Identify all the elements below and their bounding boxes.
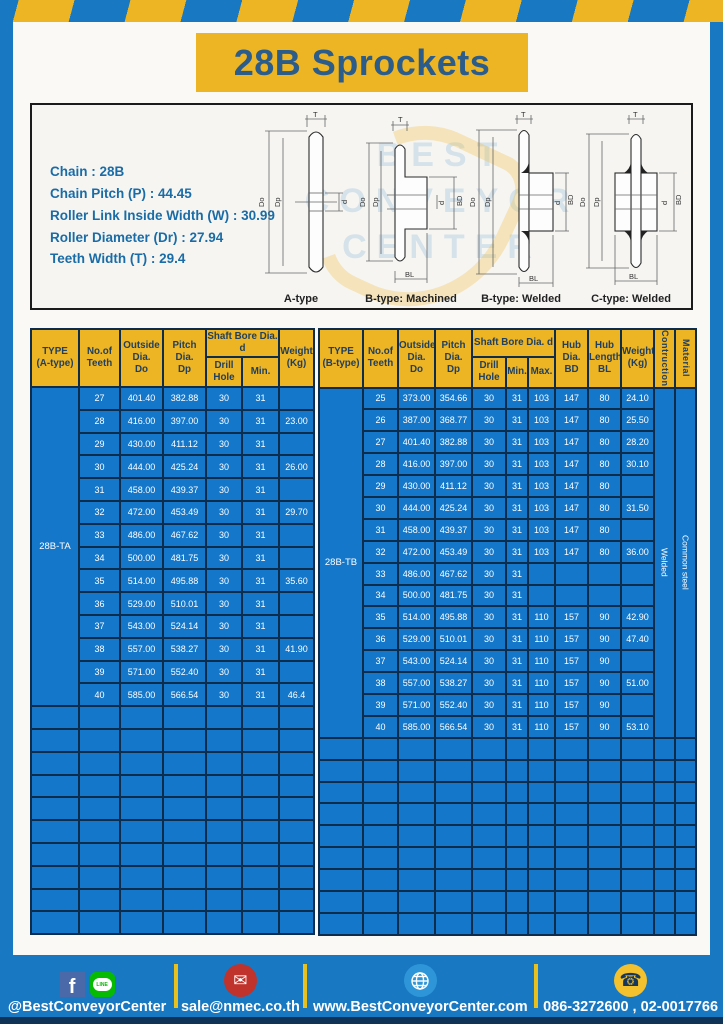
cell xyxy=(588,869,621,891)
cell xyxy=(206,797,242,820)
drawing-b-type-machined: T Do Dp d BD BL B-type: Machined xyxy=(357,111,465,305)
cell xyxy=(363,869,398,891)
cell: 529.00 xyxy=(398,628,435,650)
drawing-caption: B-type: Welded xyxy=(481,293,561,305)
cell xyxy=(31,706,79,729)
cell: 147 xyxy=(555,541,588,563)
cell: 31 xyxy=(242,547,279,570)
cell xyxy=(398,803,435,825)
cell xyxy=(621,760,654,782)
cell: 382.88 xyxy=(163,387,206,410)
cell xyxy=(279,775,314,798)
cell xyxy=(120,889,163,912)
cell xyxy=(654,782,675,804)
cell xyxy=(242,820,279,843)
cell xyxy=(363,803,398,825)
cell: 31 xyxy=(242,410,279,433)
svg-text:BL: BL xyxy=(529,274,538,283)
cell xyxy=(675,847,696,869)
empty-table-row xyxy=(31,752,314,775)
cell: 31 xyxy=(242,501,279,524)
cell xyxy=(242,775,279,798)
cell xyxy=(279,797,314,820)
chain-specs: Chain : 28B Chain Pitch (P) : 44.45 Roll… xyxy=(50,161,275,270)
drawing-a-type: T Do Dp d A-type xyxy=(247,111,355,305)
cell: Welded xyxy=(654,388,675,738)
cell xyxy=(120,729,163,752)
cell: 30 xyxy=(206,569,242,592)
cell xyxy=(279,729,314,752)
table-row: 38557.00538.2730311101579051.00 xyxy=(319,672,696,694)
cell: 416.00 xyxy=(120,410,163,433)
cell xyxy=(472,825,506,847)
table-row: 40585.00566.5430311101579053.10 xyxy=(319,716,696,738)
cell xyxy=(319,825,363,847)
cell xyxy=(675,782,696,804)
cell: 31 xyxy=(506,409,528,431)
table-row: 27401.40382.8830311031478028.20 xyxy=(319,431,696,453)
cell: 30 xyxy=(472,453,506,475)
cell: 458.00 xyxy=(120,478,163,501)
cell: 37 xyxy=(79,615,120,638)
cell xyxy=(588,847,621,869)
cell xyxy=(206,820,242,843)
phone-icon: ☎ xyxy=(614,964,647,997)
cell xyxy=(206,706,242,729)
cell xyxy=(319,847,363,869)
drawing-caption: C-type: Welded xyxy=(591,293,671,305)
col-header-drill-hole: Drill Hole xyxy=(472,357,506,387)
svg-text:T: T xyxy=(633,111,638,119)
cell: 514.00 xyxy=(398,606,435,628)
drawings-row: T Do Dp d A-type T xyxy=(247,111,685,305)
cell xyxy=(555,847,588,869)
cell xyxy=(31,911,79,934)
cell xyxy=(528,782,555,804)
cell: 31 xyxy=(506,585,528,607)
cell xyxy=(319,869,363,891)
table-row: 35514.00495.8830311101579042.90 xyxy=(319,606,696,628)
cell xyxy=(472,891,506,913)
cell: 510.01 xyxy=(163,592,206,615)
svg-text:BD: BD xyxy=(455,195,464,206)
cell: 46.4 xyxy=(279,683,314,706)
cell: 500.00 xyxy=(120,547,163,570)
svg-text:BL: BL xyxy=(405,270,414,279)
cell: 30 xyxy=(206,524,242,547)
b-type-welded-diagram: T Do Dp d BD BL xyxy=(467,111,575,293)
svg-text:d: d xyxy=(437,201,446,205)
table-row: 39571.00552.40303111015790 xyxy=(319,694,696,716)
cell: 36 xyxy=(363,628,398,650)
cell xyxy=(31,820,79,843)
cell: 354.66 xyxy=(435,388,472,410)
cell xyxy=(163,820,206,843)
cell xyxy=(163,911,206,934)
footer-phone[interactable]: ☎ 086-3272600 , 02-0017766 xyxy=(538,957,723,1015)
cell: 571.00 xyxy=(398,694,435,716)
cell: 29 xyxy=(363,475,398,497)
cell: 33 xyxy=(363,563,398,585)
cell xyxy=(31,797,79,820)
empty-table-row xyxy=(31,889,314,912)
cell: 30 xyxy=(206,592,242,615)
cell: 34 xyxy=(79,547,120,570)
cell: 31 xyxy=(506,628,528,650)
cell xyxy=(242,911,279,934)
table-b-type: TYPE (B-type) No.of Teeth Outside Dia. D… xyxy=(318,328,697,936)
cell xyxy=(588,563,621,585)
cell: 47.40 xyxy=(621,628,654,650)
cell: 495.88 xyxy=(435,606,472,628)
cell xyxy=(555,913,588,935)
table-row: 36529.00510.0130311101579047.40 xyxy=(319,628,696,650)
cell: 25.50 xyxy=(621,409,654,431)
cell: 157 xyxy=(555,606,588,628)
cell xyxy=(319,760,363,782)
cell xyxy=(79,866,120,889)
cell: 110 xyxy=(528,694,555,716)
cell xyxy=(506,738,528,760)
cell: 90 xyxy=(588,672,621,694)
cell xyxy=(528,825,555,847)
table-row: 28416.00397.0030311031478030.10 xyxy=(319,453,696,475)
cell: 103 xyxy=(528,388,555,410)
cell xyxy=(363,825,398,847)
cell: 110 xyxy=(528,716,555,738)
cell: 31 xyxy=(506,672,528,694)
empty-table-row xyxy=(31,775,314,798)
cell: 36 xyxy=(79,592,120,615)
table-row: 34500.00481.753031 xyxy=(319,585,696,607)
table-a-body: 28B-TA27401.40382.88303128416.00397.0030… xyxy=(31,387,314,934)
cell: 566.54 xyxy=(435,716,472,738)
svg-text:d: d xyxy=(340,200,349,204)
cell xyxy=(79,911,120,934)
cell xyxy=(398,782,435,804)
cell: 30 xyxy=(472,563,506,585)
cell: 157 xyxy=(555,650,588,672)
cell xyxy=(319,913,363,935)
cell: 453.49 xyxy=(163,501,206,524)
cell: 31 xyxy=(506,475,528,497)
cell: 157 xyxy=(555,628,588,650)
cell xyxy=(120,752,163,775)
cell xyxy=(621,847,654,869)
cell xyxy=(675,738,696,760)
cell xyxy=(120,775,163,798)
cell xyxy=(31,843,79,866)
c-type-welded-diagram: T Do Dp d BD BL xyxy=(579,111,683,293)
technical-drawing-panel: BEST CONVEYOR CENTER Chain : 28B Chain P… xyxy=(30,103,693,310)
catalog-page: 28B Sprockets BEST CONVEYOR CENTER Chain… xyxy=(0,0,723,1024)
cell: 514.00 xyxy=(120,569,163,592)
cell: 31 xyxy=(506,716,528,738)
cell xyxy=(621,519,654,541)
cell xyxy=(555,563,588,585)
cell xyxy=(528,891,555,913)
cell: 401.40 xyxy=(120,387,163,410)
cell: 32 xyxy=(363,541,398,563)
phone-numbers[interactable]: 086-3272600 , 02-0017766 xyxy=(543,999,718,1015)
cell xyxy=(79,889,120,912)
cell xyxy=(279,387,314,410)
drawing-caption: B-type: Machined xyxy=(365,293,457,305)
cell: 31 xyxy=(506,606,528,628)
table-row: 31458.00439.37303110314780 xyxy=(319,519,696,541)
page-title: 28B Sprockets xyxy=(234,42,491,84)
cell: 51.00 xyxy=(621,672,654,694)
cell: 387.00 xyxy=(398,409,435,431)
cell xyxy=(555,891,588,913)
cell: 529.00 xyxy=(120,592,163,615)
cell xyxy=(435,847,472,869)
cell xyxy=(506,891,528,913)
cell: 90 xyxy=(588,628,621,650)
cell: 30 xyxy=(472,606,506,628)
cell xyxy=(472,847,506,869)
cell xyxy=(506,869,528,891)
social-icons: f LINE xyxy=(60,972,115,997)
website-url[interactable]: www.BestConveyorCenter.com xyxy=(313,999,528,1015)
col-header-pitch-dia: Pitch Dia. Dp xyxy=(435,329,472,388)
empty-table-row xyxy=(319,913,696,935)
b-type-machined-diagram: T Do Dp d BD BL xyxy=(357,111,465,293)
cell xyxy=(435,782,472,804)
cell xyxy=(279,843,314,866)
cell xyxy=(398,738,435,760)
cell: 23.00 xyxy=(279,410,314,433)
cell: 543.00 xyxy=(398,650,435,672)
cell: 571.00 xyxy=(120,661,163,684)
cell: 458.00 xyxy=(398,519,435,541)
cell xyxy=(398,891,435,913)
empty-table-row xyxy=(31,729,314,752)
table-row: 28B-TA27401.40382.883031 xyxy=(31,387,314,410)
cell: 31 xyxy=(242,592,279,615)
cell: 481.75 xyxy=(435,585,472,607)
cell xyxy=(506,803,528,825)
cell xyxy=(279,478,314,501)
cell xyxy=(675,891,696,913)
cell: 147 xyxy=(555,431,588,453)
cell xyxy=(206,843,242,866)
empty-table-row xyxy=(31,866,314,889)
cell xyxy=(528,585,555,607)
cell: 35 xyxy=(363,606,398,628)
col-header-teeth: No.of Teeth xyxy=(79,329,120,387)
cell: 31 xyxy=(242,615,279,638)
cell xyxy=(279,661,314,684)
cell xyxy=(654,891,675,913)
cell: 24.10 xyxy=(621,388,654,410)
cell xyxy=(435,891,472,913)
cell xyxy=(472,869,506,891)
cell xyxy=(79,775,120,798)
footer-items: f LINE @BestConveyorCenter ✉ sale@nmec.c… xyxy=(0,957,723,1015)
facebook-icon: f xyxy=(60,972,85,997)
cell xyxy=(279,911,314,934)
svg-text:Do: Do xyxy=(257,197,266,207)
cell xyxy=(506,825,528,847)
cell: 397.00 xyxy=(163,410,206,433)
table-row: 37543.00524.14303111015790 xyxy=(319,650,696,672)
email-icon: ✉ xyxy=(224,964,257,997)
cell: 110 xyxy=(528,650,555,672)
cell: 34 xyxy=(363,585,398,607)
cell xyxy=(363,891,398,913)
col-header-weight: Weight (Kg) xyxy=(621,329,654,388)
empty-table-row xyxy=(31,911,314,934)
cell: 30 xyxy=(472,672,506,694)
cell: 31 xyxy=(506,497,528,519)
cell xyxy=(242,889,279,912)
cell: 439.37 xyxy=(435,519,472,541)
cell: 110 xyxy=(528,606,555,628)
cell: 30 xyxy=(206,615,242,638)
cell xyxy=(31,729,79,752)
footer-social[interactable]: f LINE @BestConveyorCenter xyxy=(0,957,174,1015)
footer-email[interactable]: ✉ sale@nmec.co.th xyxy=(178,957,302,1015)
cell xyxy=(31,866,79,889)
cell xyxy=(555,803,588,825)
cell: 28.20 xyxy=(621,431,654,453)
cell: 30 xyxy=(472,628,506,650)
cell xyxy=(675,913,696,935)
cell: 31 xyxy=(242,433,279,456)
col-header-pitch-dia: Pitch Dia. Dp xyxy=(163,329,206,387)
cell: 30 xyxy=(472,650,506,672)
cell: 42.90 xyxy=(621,606,654,628)
cell: 31 xyxy=(506,519,528,541)
cell: 90 xyxy=(588,716,621,738)
cell: 552.40 xyxy=(435,694,472,716)
svg-text:T: T xyxy=(521,111,526,119)
footer-website[interactable]: www.BestConveyorCenter.com xyxy=(307,957,535,1015)
col-header-hub-length: Hub Length BL xyxy=(588,329,621,388)
cell xyxy=(398,825,435,847)
cell: 31 xyxy=(242,455,279,478)
cell: 31 xyxy=(242,683,279,706)
cell xyxy=(79,843,120,866)
svg-text:Dp: Dp xyxy=(483,197,492,207)
cell xyxy=(506,782,528,804)
col-header-shaft-bore: Shaft Bore Dia. d xyxy=(472,329,555,357)
cell xyxy=(435,738,472,760)
cell: 38 xyxy=(363,672,398,694)
cell: 31 xyxy=(242,524,279,547)
cell: 31 xyxy=(506,453,528,475)
cell xyxy=(472,760,506,782)
cell xyxy=(621,650,654,672)
social-handle[interactable]: @BestConveyorCenter xyxy=(8,999,166,1015)
cell xyxy=(528,847,555,869)
cell: 103 xyxy=(528,497,555,519)
cell xyxy=(472,913,506,935)
cell: 28B-TA xyxy=(31,387,79,706)
cell: 39 xyxy=(363,694,398,716)
cell xyxy=(675,825,696,847)
cell: 30 xyxy=(206,547,242,570)
cell: 31 xyxy=(506,431,528,453)
cell: 439.37 xyxy=(163,478,206,501)
cell: 103 xyxy=(528,475,555,497)
cell xyxy=(621,694,654,716)
cell: 90 xyxy=(588,606,621,628)
col-header-min: Min. xyxy=(242,357,279,387)
cell: 30 xyxy=(472,585,506,607)
cell: 26 xyxy=(363,409,398,431)
cell: 30 xyxy=(363,497,398,519)
cell xyxy=(398,847,435,869)
cell xyxy=(588,891,621,913)
cell: 30 xyxy=(206,478,242,501)
cell xyxy=(621,891,654,913)
cell xyxy=(279,889,314,912)
cell: 31 xyxy=(79,478,120,501)
cell xyxy=(654,738,675,760)
cell: 157 xyxy=(555,672,588,694)
cell xyxy=(279,820,314,843)
cell: 30 xyxy=(472,497,506,519)
drawing-b-type-welded: T Do Dp d BD BL B-type: Welded xyxy=(467,111,575,305)
cell xyxy=(472,738,506,760)
cell xyxy=(435,803,472,825)
cell xyxy=(588,585,621,607)
cell: 557.00 xyxy=(398,672,435,694)
cell: 37 xyxy=(363,650,398,672)
cell xyxy=(588,825,621,847)
cell xyxy=(435,760,472,782)
cell xyxy=(279,615,314,638)
svg-text:d: d xyxy=(553,201,562,205)
cell xyxy=(120,866,163,889)
cell: 430.00 xyxy=(398,475,435,497)
cell xyxy=(398,760,435,782)
cell: 147 xyxy=(555,409,588,431)
cell: 30 xyxy=(206,387,242,410)
cell xyxy=(398,869,435,891)
cell xyxy=(528,563,555,585)
col-header-teeth: No.of Teeth xyxy=(363,329,398,388)
cell: 495.88 xyxy=(163,569,206,592)
cell xyxy=(675,760,696,782)
cell: 30 xyxy=(472,519,506,541)
drawing-c-type-welded: T Do Dp d BD BL C-type: xyxy=(577,111,685,305)
cell: 444.00 xyxy=(398,497,435,519)
col-header-outside-dia: Outside Dia. Do xyxy=(398,329,435,388)
cell: 31 xyxy=(242,661,279,684)
cell: 147 xyxy=(555,497,588,519)
cell xyxy=(120,843,163,866)
cell: 416.00 xyxy=(398,453,435,475)
cell xyxy=(79,706,120,729)
cell xyxy=(79,797,120,820)
cell: 27 xyxy=(363,431,398,453)
cell: 80 xyxy=(588,497,621,519)
cell: 28 xyxy=(79,410,120,433)
cell xyxy=(588,803,621,825)
cell: 472.00 xyxy=(120,501,163,524)
cell xyxy=(528,760,555,782)
email-address[interactable]: sale@nmec.co.th xyxy=(181,999,300,1015)
cell: 29.70 xyxy=(279,501,314,524)
cell xyxy=(163,797,206,820)
cell: 41.90 xyxy=(279,638,314,661)
cell xyxy=(120,706,163,729)
cell: 30 xyxy=(206,638,242,661)
cell: 31 xyxy=(242,478,279,501)
